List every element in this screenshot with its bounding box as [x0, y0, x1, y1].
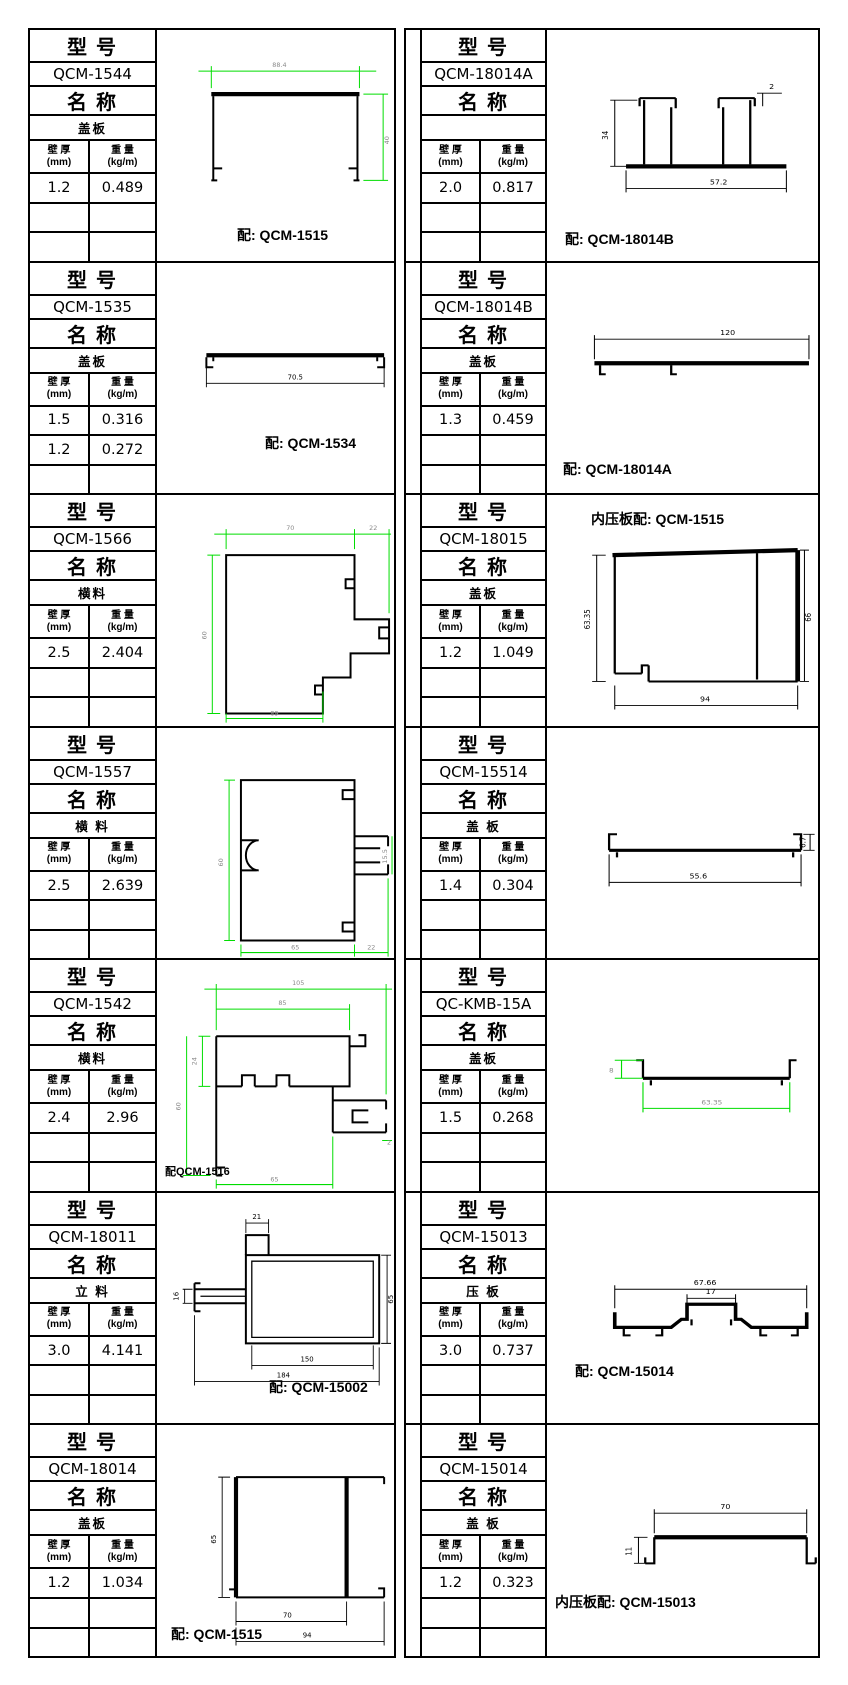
name-header: 名 称 — [30, 1017, 155, 1046]
spec-row — [30, 931, 155, 959]
spec-table: 型 号 QCM-1542 名 称 横料 壁 厚(mm) 重 量(kg/m) 2.… — [30, 960, 157, 1191]
name-header: 名 称 — [30, 1250, 155, 1279]
spec-row — [422, 698, 545, 726]
name-value — [422, 116, 545, 141]
thickness-header: 壁 厚(mm) — [422, 141, 481, 172]
spec-row: 1.30.459 — [422, 407, 545, 437]
svg-text:40: 40 — [383, 136, 391, 144]
weight-header: 重 量(kg/m) — [90, 1536, 155, 1567]
model-header: 型 号 — [30, 495, 155, 528]
spec-row — [30, 204, 155, 234]
thickness-header: 壁 厚(mm) — [422, 606, 481, 637]
model-value: QCM-18014 — [30, 1458, 155, 1482]
profile-cell-qcm-18014b: 型 号 QCM-18014B 名 称 盖板 壁 厚(mm) 重 量(kg/m) … — [406, 263, 818, 496]
profile-cell-qcm-1544: 型 号 QCM-1544 名 称 盖板 壁 厚(mm) 重 量(kg/m) 1.… — [30, 30, 394, 263]
spec-row — [30, 669, 155, 699]
spec-row: 1.20.323 — [422, 1569, 545, 1599]
profile-cell-qcm-1535: 型 号 QCM-1535 名 称 盖板 壁 厚(mm) 重 量(kg/m) 1.… — [30, 263, 394, 496]
cover-strip-sketch: 55.6 6.7 — [547, 728, 818, 959]
name-value: 盖板 — [422, 1046, 545, 1071]
spec-table: 型 号 QCM-1544 名 称 盖板 壁 厚(mm) 重 量(kg/m) 1.… — [30, 30, 157, 261]
svg-text:70.5: 70.5 — [288, 373, 303, 381]
spec-row — [422, 1629, 545, 1657]
column-headers: 壁 厚(mm) 重 量(kg/m) — [30, 374, 155, 407]
profile-drawing: 65 70 94 配: QCM-1515 — [157, 1425, 394, 1656]
svg-text:85: 85 — [278, 999, 286, 1007]
svg-text:65: 65 — [210, 1535, 218, 1544]
thickness-header: 壁 厚(mm) — [422, 1304, 481, 1335]
spec-row: 1.20.272 — [30, 436, 155, 466]
spec-row: 1.20.489 — [30, 174, 155, 204]
weight-header: 重 量(kg/m) — [90, 374, 155, 405]
pairing-caption: 内压板配: QCM-1515 — [591, 509, 724, 529]
column-headers: 壁 厚(mm) 重 量(kg/m) — [422, 1304, 545, 1337]
spec-row — [422, 1599, 545, 1629]
profile-drawing: 34 2 57.2 配: QCM-18014B — [547, 30, 818, 261]
profile-cell-qcm-15514: 型 号 QCM-15514 名 称 盖 板 壁 厚(mm) 重 量(kg/m) … — [406, 728, 818, 961]
svg-text:21: 21 — [252, 1213, 261, 1221]
svg-text:89: 89 — [270, 710, 278, 718]
svg-text:94: 94 — [303, 1632, 312, 1640]
name-header: 名 称 — [422, 785, 545, 814]
spec-row: 2.42.96 — [30, 1104, 155, 1134]
left-column: 型 号 QCM-1544 名 称 盖板 壁 厚(mm) 重 量(kg/m) 1.… — [28, 28, 396, 1658]
weight-header: 重 量(kg/m) — [481, 606, 545, 637]
svg-text:60: 60 — [175, 1103, 183, 1111]
spec-table: 型 号 QCM-18011 名 称 立 料 壁 厚(mm) 重 量(kg/m) … — [30, 1193, 157, 1424]
svg-text:70: 70 — [720, 1503, 730, 1511]
name-value: 横料 — [30, 1046, 155, 1071]
thickness-header: 壁 厚(mm) — [30, 606, 90, 637]
model-value: QCM-1535 — [30, 296, 155, 320]
model-value: QCM-1542 — [30, 993, 155, 1017]
profile-cell-qcm-18014: 型 号 QCM-18014 名 称 盖板 壁 厚(mm) 重 量(kg/m) 1… — [30, 1425, 394, 1656]
thickness-header: 壁 厚(mm) — [30, 141, 90, 172]
profile-drawing: 21 16 65 150 184 配: QCM-15002 — [157, 1193, 394, 1424]
double-channel-sketch: 34 2 57.2 — [547, 30, 818, 261]
spec-row — [422, 931, 545, 959]
weight-header: 重 量(kg/m) — [481, 1071, 545, 1102]
name-header: 名 称 — [30, 785, 155, 814]
spec-row: 1.21.049 — [422, 639, 545, 669]
name-value: 盖 板 — [422, 814, 545, 839]
svg-text:16: 16 — [173, 1292, 181, 1301]
model-value: QCM-1544 — [30, 63, 155, 87]
svg-text:22: 22 — [367, 943, 375, 951]
svg-text:15.5: 15.5 — [381, 849, 389, 863]
spec-row — [422, 436, 545, 466]
svg-text:6.7: 6.7 — [798, 836, 808, 847]
model-value: QCM-15013 — [422, 1226, 545, 1250]
thickness-header: 壁 厚(mm) — [30, 839, 90, 870]
spec-table: 型 号 QCM-15013 名 称 压 板 壁 厚(mm) 重 量(kg/m) … — [420, 1193, 547, 1424]
thickness-header: 壁 厚(mm) — [422, 374, 481, 405]
corner-profile-sketch: 70 22 60 89 — [157, 495, 394, 726]
thickness-header: 壁 厚(mm) — [30, 1071, 90, 1102]
weight-header: 重 量(kg/m) — [90, 839, 155, 870]
spec-row — [422, 233, 545, 261]
name-value: 压 板 — [422, 1279, 545, 1304]
profile-spec-sheet: 型 号 QCM-1544 名 称 盖板 壁 厚(mm) 重 量(kg/m) 1.… — [0, 0, 848, 1685]
spec-row — [30, 1134, 155, 1164]
svg-text:11: 11 — [624, 1547, 634, 1556]
weight-header: 重 量(kg/m) — [90, 141, 155, 172]
svg-text:22: 22 — [369, 524, 377, 532]
column-headers: 壁 厚(mm) 重 量(kg/m) — [422, 141, 545, 174]
svg-text:88.4: 88.4 — [272, 61, 286, 69]
svg-text:67.66: 67.66 — [694, 1279, 717, 1287]
model-header: 型 号 — [422, 30, 545, 63]
svg-text:150: 150 — [301, 1355, 314, 1363]
right-column: 型 号 QCM-18014A 名 称 壁 厚(mm) 重 量(kg/m) 2.0… — [404, 28, 820, 1658]
profile-cell-qcm-15013: 型 号 QCM-15013 名 称 压 板 壁 厚(mm) 重 量(kg/m) … — [406, 1193, 818, 1426]
column-headers: 壁 厚(mm) 重 量(kg/m) — [30, 606, 155, 639]
name-value: 盖板 — [422, 349, 545, 374]
column-headers: 壁 厚(mm) 重 量(kg/m) — [422, 1536, 545, 1569]
svg-text:63.35: 63.35 — [701, 1099, 722, 1107]
spec-row: 1.40.304 — [422, 872, 545, 902]
thickness-header: 壁 厚(mm) — [30, 1304, 90, 1335]
thickness-header: 壁 厚(mm) — [422, 1536, 481, 1567]
svg-text:65: 65 — [387, 1295, 394, 1304]
thickness-header: 壁 厚(mm) — [30, 1536, 90, 1567]
name-value: 盖板 — [30, 116, 155, 141]
spec-row: 2.52.404 — [30, 639, 155, 669]
spec-table: 型 号 QCM-18015 名 称 盖板 壁 厚(mm) 重 量(kg/m) 1… — [420, 495, 547, 726]
spec-table: 型 号 QCM-18014B 名 称 盖板 壁 厚(mm) 重 量(kg/m) … — [420, 263, 547, 494]
weight-header: 重 量(kg/m) — [481, 839, 545, 870]
svg-text:63.35: 63.35 — [583, 609, 593, 629]
model-value: QCM-18015 — [422, 528, 545, 552]
profile-drawing: 63.35 66 94 内压板配: QCM-1515 — [547, 495, 818, 726]
spec-row — [30, 1629, 155, 1657]
thickness-header: 壁 厚(mm) — [422, 1071, 481, 1102]
name-header: 名 称 — [30, 1482, 155, 1511]
svg-text:105: 105 — [292, 979, 304, 987]
profile-drawing: 55.6 6.7 — [547, 728, 818, 959]
svg-text:55.6: 55.6 — [690, 872, 708, 880]
name-header: 名 称 — [422, 320, 545, 349]
model-header: 型 号 — [30, 30, 155, 63]
profile-cell-qcm-1557: 型 号 QCM-1557 名 称 横 料 壁 厚(mm) 重 量(kg/m) 2… — [30, 728, 394, 961]
spec-row — [30, 901, 155, 931]
spec-row — [30, 466, 155, 494]
model-header: 型 号 — [30, 263, 155, 296]
name-value: 横料 — [30, 581, 155, 606]
spec-row — [422, 204, 545, 234]
profile-cell-qc-kmb-15a: 型 号 QC-KMB-15A 名 称 盖板 壁 厚(mm) 重 量(kg/m) … — [406, 960, 818, 1193]
column-headers: 壁 厚(mm) 重 量(kg/m) — [30, 141, 155, 174]
spec-row — [422, 1134, 545, 1164]
spec-row — [30, 233, 155, 261]
pairing-caption: 配: QCM-1515 — [237, 225, 328, 245]
column-headers: 壁 厚(mm) 重 量(kg/m) — [30, 839, 155, 872]
model-header: 型 号 — [422, 495, 545, 528]
profile-drawing: 70 22 60 89 — [157, 495, 394, 726]
weight-header: 重 量(kg/m) — [90, 606, 155, 637]
svg-text:34: 34 — [601, 131, 611, 140]
spec-table: 型 号 QCM-15014 名 称 盖 板 壁 厚(mm) 重 量(kg/m) … — [420, 1425, 547, 1656]
model-value: QCM-18011 — [30, 1226, 155, 1250]
model-value: QCM-18014A — [422, 63, 545, 87]
profile-cell-qcm-18011: 型 号 QCM-18011 名 称 立 料 壁 厚(mm) 重 量(kg/m) … — [30, 1193, 394, 1426]
spec-row — [422, 1163, 545, 1191]
spec-row: 3.00.737 — [422, 1337, 545, 1367]
pairing-caption: 配: QCM-15014 — [575, 1361, 674, 1381]
weight-header: 重 量(kg/m) — [90, 1304, 155, 1335]
profile-cell-qcm-18014a: 型 号 QCM-18014A 名 称 壁 厚(mm) 重 量(kg/m) 2.0… — [406, 30, 818, 263]
profile-drawing: 120 配: QCM-18014A — [547, 263, 818, 494]
thickness-header: 壁 厚(mm) — [422, 839, 481, 870]
name-header: 名 称 — [422, 87, 545, 116]
spec-row: 1.50.316 — [30, 407, 155, 437]
pressure-plate-sketch: 67.66 17 — [547, 1193, 818, 1424]
model-value: QCM-15514 — [422, 761, 545, 785]
pairing-caption: 配: QCM-1515 — [171, 1624, 262, 1644]
spec-row — [30, 1366, 155, 1396]
name-header: 名 称 — [422, 1017, 545, 1046]
spec-table: 型 号 QCM-1557 名 称 横 料 壁 厚(mm) 重 量(kg/m) 2… — [30, 728, 157, 959]
name-value: 盖板 — [30, 349, 155, 374]
weight-header: 重 量(kg/m) — [481, 374, 545, 405]
model-value: QC-KMB-15A — [422, 993, 545, 1017]
model-header: 型 号 — [30, 1193, 155, 1226]
spec-row — [422, 1366, 545, 1396]
spec-row: 3.04.141 — [30, 1337, 155, 1367]
spec-table: 型 号 QCM-18014 名 称 盖板 壁 厚(mm) 重 量(kg/m) 1… — [30, 1425, 157, 1656]
hat-cover-sketch: 70 11 — [547, 1425, 818, 1656]
profile-drawing: 70 11 内压板配: QCM-15013 — [547, 1425, 818, 1656]
cover-box-sketch: 65 70 94 — [157, 1425, 394, 1656]
model-header: 型 号 — [30, 728, 155, 761]
svg-text:94: 94 — [700, 695, 710, 703]
model-value: QCM-1566 — [30, 528, 155, 552]
svg-text:2: 2 — [769, 83, 774, 91]
column-headers: 壁 厚(mm) 重 量(kg/m) — [30, 1071, 155, 1104]
pairing-caption: 配: QCM-15002 — [269, 1377, 368, 1397]
name-header: 名 称 — [30, 552, 155, 581]
spec-table: 型 号 QCM-18014A 名 称 壁 厚(mm) 重 量(kg/m) 2.0… — [420, 30, 547, 261]
weight-header: 重 量(kg/m) — [90, 1071, 155, 1102]
transom-profile-sketch: 105 85 24 60 2 65 — [157, 960, 394, 1191]
profile-drawing: 88.4 40 配: QCM-1515 — [157, 30, 394, 261]
profile-drawing: 67.66 17 配: QCM-15014 — [547, 1193, 818, 1424]
svg-text:60: 60 — [217, 858, 225, 866]
model-value: QCM-15014 — [422, 1458, 545, 1482]
svg-text:70: 70 — [286, 524, 294, 532]
mullion-profile-sketch: 60 15.5 65 22 — [157, 728, 394, 959]
pairing-caption: 配QCM-1516 — [165, 1163, 230, 1179]
profile-drawing: 60 15.5 65 22 — [157, 728, 394, 959]
svg-text:24: 24 — [191, 1057, 199, 1065]
profile-cell-qcm-15014: 型 号 QCM-15014 名 称 盖 板 壁 厚(mm) 重 量(kg/m) … — [406, 1425, 818, 1656]
model-header: 型 号 — [422, 1425, 545, 1458]
spec-row: 2.52.639 — [30, 872, 155, 902]
pairing-caption: 配: QCM-18014A — [563, 459, 672, 479]
column-headers: 壁 厚(mm) 重 量(kg/m) — [422, 606, 545, 639]
model-header: 型 号 — [422, 1193, 545, 1226]
model-header: 型 号 — [422, 728, 545, 761]
model-header: 型 号 — [30, 1425, 155, 1458]
spec-row — [422, 669, 545, 699]
name-header: 名 称 — [422, 1250, 545, 1279]
spec-row: 2.00.817 — [422, 174, 545, 204]
spec-table: 型 号 QCM-1566 名 称 横料 壁 厚(mm) 重 量(kg/m) 2.… — [30, 495, 157, 726]
column-headers: 壁 厚(mm) 重 量(kg/m) — [422, 1071, 545, 1104]
column-headers: 壁 厚(mm) 重 量(kg/m) — [30, 1304, 155, 1337]
weight-header: 重 量(kg/m) — [481, 1536, 545, 1567]
thickness-header: 壁 厚(mm) — [30, 374, 90, 405]
column-headers: 壁 厚(mm) 重 量(kg/m) — [422, 839, 545, 872]
large-cover-sketch: 63.35 66 94 — [547, 495, 818, 726]
column-headers: 壁 厚(mm) 重 量(kg/m) — [30, 1536, 155, 1569]
column-headers: 壁 厚(mm) 重 量(kg/m) — [422, 374, 545, 407]
weight-header: 重 量(kg/m) — [481, 141, 545, 172]
name-value: 盖板 — [422, 581, 545, 606]
model-header: 型 号 — [422, 960, 545, 993]
svg-text:66: 66 — [804, 613, 814, 622]
svg-text:2: 2 — [387, 1139, 391, 1147]
svg-text:60: 60 — [200, 631, 208, 639]
spec-row: 1.50.268 — [422, 1104, 545, 1134]
pairing-caption: 内压板配: QCM-15013 — [555, 1592, 696, 1612]
name-header: 名 称 — [422, 552, 545, 581]
model-value: QCM-18014B — [422, 296, 545, 320]
profile-cell-qcm-1566: 型 号 QCM-1566 名 称 横料 壁 厚(mm) 重 量(kg/m) 2.… — [30, 495, 394, 728]
spec-row — [422, 901, 545, 931]
profile-cell-qcm-18015: 型 号 QCM-18015 名 称 盖板 壁 厚(mm) 重 量(kg/m) 1… — [406, 495, 818, 728]
spec-table: 型 号 QC-KMB-15A 名 称 盖板 壁 厚(mm) 重 量(kg/m) … — [420, 960, 547, 1191]
profile-drawing: 105 85 24 60 2 65 配QCM-1516 — [157, 960, 394, 1191]
spec-row — [422, 466, 545, 494]
model-header: 型 号 — [30, 960, 155, 993]
model-header: 型 号 — [422, 263, 545, 296]
profile-cell-qcm-1542: 型 号 QCM-1542 名 称 横料 壁 厚(mm) 重 量(kg/m) 2.… — [30, 960, 394, 1193]
pairing-caption: 配: QCM-18014B — [565, 229, 674, 249]
spec-row — [30, 1163, 155, 1191]
profile-drawing: 70.5 配: QCM-1534 — [157, 263, 394, 494]
spec-row — [30, 1396, 155, 1424]
spec-table: 型 号 QCM-15514 名 称 盖 板 壁 厚(mm) 重 量(kg/m) … — [420, 728, 547, 959]
spec-row: 1.21.034 — [30, 1569, 155, 1599]
name-value: 横 料 — [30, 814, 155, 839]
svg-text:70: 70 — [283, 1612, 292, 1620]
name-value: 立 料 — [30, 1279, 155, 1304]
svg-text:17: 17 — [706, 1288, 716, 1296]
profile-drawing: 8 63.35 — [547, 960, 818, 1191]
spec-row — [30, 698, 155, 726]
name-header: 名 称 — [30, 87, 155, 116]
spec-row — [30, 1599, 155, 1629]
spec-row — [422, 1396, 545, 1424]
name-header: 名 称 — [422, 1482, 545, 1511]
spec-table: 型 号 QCM-1535 名 称 盖板 壁 厚(mm) 重 量(kg/m) 1.… — [30, 263, 157, 494]
flat-bar-sketch: 70.5 — [157, 263, 394, 494]
svg-text:65: 65 — [291, 943, 299, 951]
name-value: 盖 板 — [422, 1511, 545, 1536]
weight-header: 重 量(kg/m) — [481, 1304, 545, 1335]
cover-plate-sketch: 8 63.35 — [547, 960, 818, 1191]
svg-text:65: 65 — [270, 1176, 278, 1184]
pairing-caption: 配: QCM-1534 — [265, 433, 356, 453]
name-value: 盖板 — [30, 1511, 155, 1536]
model-value: QCM-1557 — [30, 761, 155, 785]
name-header: 名 称 — [30, 320, 155, 349]
svg-text:120: 120 — [720, 328, 735, 336]
svg-text:57.2: 57.2 — [710, 178, 728, 186]
svg-text:8: 8 — [609, 1067, 614, 1075]
